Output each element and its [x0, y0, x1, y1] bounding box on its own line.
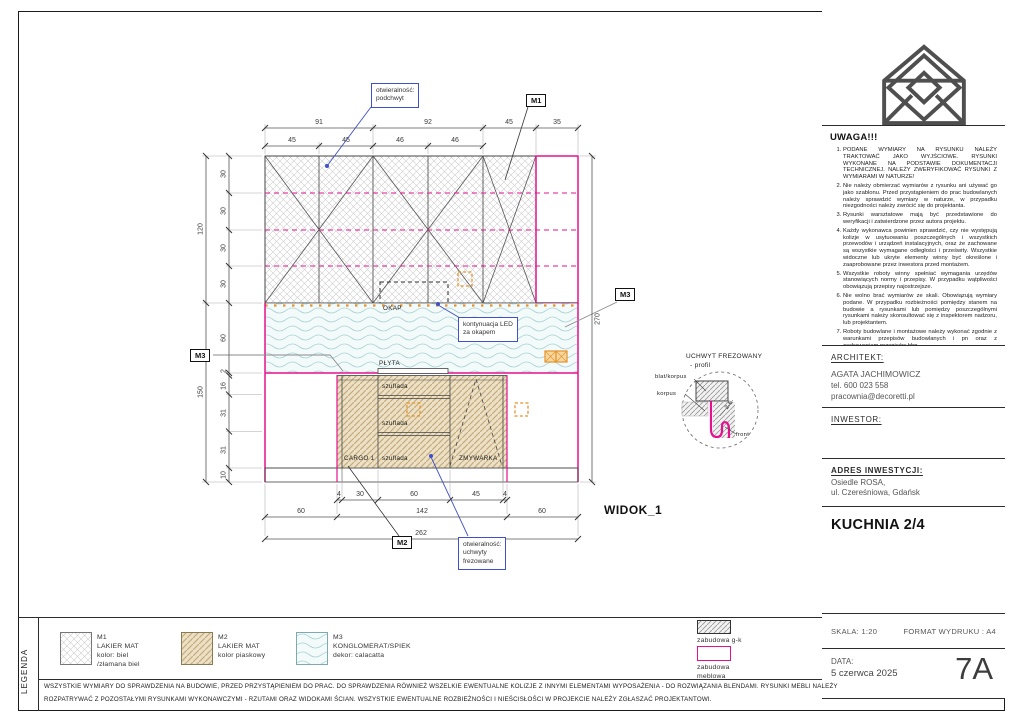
- detail-blat-label: blat/korpus: [655, 374, 687, 381]
- legend-line: LAKIER MAT: [97, 642, 140, 651]
- address-line1: Osiedle ROSA,: [831, 478, 996, 487]
- callout-line: otwieralność:: [376, 87, 414, 96]
- note-item: Nie należy obmierzać wymiarów z rysunku …: [843, 183, 997, 210]
- detail-title: UCHWYT FREZOWANY: [686, 353, 762, 360]
- dim-label: 16: [221, 382, 228, 390]
- dim-label: 45: [505, 119, 513, 127]
- marker-m3-right: M3: [615, 288, 635, 301]
- legend-line: kolor piaskowy: [218, 651, 265, 660]
- legend-zone-meblowa: zabudowa meblowa: [697, 663, 730, 681]
- callout-line: otwieralność:: [463, 541, 501, 550]
- legend-code: M1: [97, 633, 140, 642]
- legend-strip-label: LEGENDA: [20, 640, 37, 702]
- date-heading: DATA:: [831, 657, 853, 666]
- footer-note-line1: WSZYSTKIE WYMIARY DO SPRAWDZENIA NA BUDO…: [44, 683, 838, 690]
- marker-m3-left: M3: [190, 349, 210, 362]
- dim-label: 4: [337, 491, 341, 499]
- date-value: 5 czerwca 2025: [831, 668, 898, 679]
- callout-line: kontynuacja LED: [463, 321, 513, 330]
- scale-section: SKALA: 1:20 FORMAT WYDRUKU : A4: [822, 613, 1005, 648]
- legend-strip-divider-vertical: [38, 617, 39, 711]
- legend-code: M3: [333, 633, 411, 642]
- dim-label: 30: [356, 491, 364, 499]
- scale-label: SKALA: 1:20: [831, 627, 877, 636]
- dim-label: 30: [221, 207, 228, 215]
- callout-line: frezowane: [463, 558, 501, 567]
- legend-swatch-m3: [296, 632, 328, 665]
- dim-label: 60: [297, 508, 305, 516]
- dim-label: 30: [221, 170, 228, 178]
- investor-heading: INWESTOR:: [831, 415, 996, 424]
- dim-label: 262: [415, 530, 427, 538]
- dim-label: 35: [553, 119, 561, 127]
- szuflada-label: szuflada: [382, 383, 408, 390]
- marker-m1: M1: [526, 94, 546, 107]
- sheet-title: KUCHNIA 2/4: [831, 517, 996, 533]
- legend-zone-gk: zabudowa g-k: [697, 636, 742, 645]
- right-panel-bottom-border: [822, 698, 1005, 699]
- architect-name: AGATA JACHIMOWICZ: [831, 369, 996, 379]
- architect-phone: tel. 600 023 558: [831, 381, 996, 390]
- notes-section: UWAGA!!! PODANE WYMIARY NA RYSUNKU NALEŻ…: [822, 125, 1005, 345]
- szuflada-label: szuflada: [382, 455, 408, 462]
- dim-label: 91: [315, 119, 323, 127]
- date-section: DATA: 5 czerwca 2025 7A: [822, 648, 1005, 698]
- legend-line: kolor: biel: [97, 651, 140, 660]
- callout-line: uchwyty: [463, 549, 501, 558]
- zmywarka-label: ZMYWARKA: [459, 455, 498, 462]
- legend-line: KONGLOMERAT/SPIEK: [333, 642, 411, 651]
- detail-subtitle: - profil: [690, 362, 710, 369]
- note-item: Każdy wykonawca powinien sprawdzić, czy …: [843, 228, 997, 269]
- dim-label: 31: [221, 409, 228, 417]
- dim-label: 45: [288, 137, 296, 145]
- legend-line: dekor: calacatta: [333, 651, 411, 660]
- legend-swatch-gk: [697, 620, 731, 634]
- address-line2: ul. Czereśniowa, Gdańsk: [831, 488, 996, 497]
- callout-podchwyt: otwieralność: podchwyt: [371, 83, 419, 108]
- dim-label: 120: [198, 223, 205, 235]
- dim-label: 60: [538, 508, 546, 516]
- format-label: FORMAT WYDRUKU : A4: [903, 627, 996, 636]
- architect-heading: ARCHITEKT:: [831, 353, 996, 362]
- szuflada-label: szuflada: [382, 420, 408, 427]
- legend-item-m1: M1 LAKIER MAT kolor: biel /złamana biel: [97, 633, 140, 669]
- view-title: WIDOK_1: [604, 503, 662, 517]
- notes-list: PODANE WYMIARY NA RYSUNKU NALEŻY TRAKTOW…: [830, 147, 997, 345]
- detail-front-label: front: [736, 432, 749, 439]
- callout-line: podchwyt: [376, 95, 414, 104]
- architect-section: ARCHITEKT: AGATA JACHIMOWICZ tel. 600 02…: [822, 345, 1005, 407]
- dim-label: 30: [221, 280, 228, 288]
- legend-swatch-m1: [60, 632, 92, 665]
- legend-code: M2: [218, 633, 265, 642]
- address-section: ADRES INWESTYCJI: Osiedle ROSA, ul. Czer…: [822, 458, 1005, 506]
- callout-line: za okapem: [463, 329, 513, 338]
- note-item: PODANE WYMIARY NA RYSUNKU NALEŻY TRAKTOW…: [843, 147, 997, 181]
- address-heading: ADRES INWESTYCJI:: [831, 466, 996, 475]
- dim-label: 92: [424, 119, 432, 127]
- legend-line: zabudowa g-k: [697, 636, 742, 645]
- legend-strip-divider-top: [18, 617, 822, 618]
- dim-label: 45: [472, 491, 480, 499]
- okap-label: OKAP: [383, 305, 402, 312]
- legend-line: zabudowa: [697, 663, 730, 672]
- dim-label: 60: [221, 334, 228, 342]
- callout-uchwyty: otwieralność: uchwyty frezowane: [458, 537, 506, 570]
- callout-led: kontynuacja LED za okapem: [458, 317, 518, 342]
- dim-label: 2: [221, 369, 228, 373]
- dim-label: 10: [221, 471, 228, 479]
- marker-m2: M2: [392, 536, 412, 549]
- plyta-label: PŁYTA: [379, 360, 400, 367]
- dim-label: 45: [342, 137, 350, 145]
- architect-email: pracownia@decoretti.pl: [831, 392, 996, 401]
- dim-label: 30: [221, 244, 228, 252]
- legend-line: LAKIER MAT: [218, 642, 265, 651]
- legend-item-m2: M2 LAKIER MAT kolor piaskowy: [218, 633, 265, 660]
- dim-label: 46: [451, 137, 459, 145]
- notes-title: UWAGA!!!: [830, 132, 997, 143]
- cargo-label: CARGO 1: [344, 455, 374, 462]
- legend-swatch-m2: [181, 632, 213, 665]
- dim-label: 46: [396, 137, 404, 145]
- sheet-number: 7A: [955, 651, 993, 687]
- detail-korpus-label: korpus: [657, 391, 676, 398]
- dim-label: 270: [595, 313, 602, 325]
- note-item: Wszystkie roboty winny spełniać wymagani…: [843, 271, 997, 291]
- dim-label: 150: [198, 386, 205, 398]
- decoretti-house-logo: [872, 41, 976, 125]
- investor-section: INWESTOR:: [822, 407, 1005, 458]
- dim-label: 142: [416, 508, 428, 516]
- legend-line: meblowa: [697, 672, 730, 681]
- note-item: Nie wolno brać wymiarów ze skali. Obowią…: [843, 293, 997, 327]
- logo-section: [822, 11, 1005, 125]
- note-item: Rysunki warsztatowe mają być przedstawio…: [843, 212, 997, 226]
- dim-label: 4: [503, 491, 507, 499]
- footer-note-line2: ROZPATRYWAĆ Z POZOSTAŁYMI RYSUNKAMI WYKO…: [44, 696, 712, 703]
- dim-label: 60: [410, 491, 418, 499]
- title-section: KUCHNIA 2/4: [822, 506, 1005, 613]
- legend-item-m3: M3 KONGLOMERAT/SPIEK dekor: calacatta: [333, 633, 411, 660]
- legend-swatch-meblowa: [697, 646, 731, 661]
- note-item: Roboty budowlane i montażowe należy wyko…: [843, 329, 997, 345]
- dim-label: 31: [221, 446, 228, 454]
- legend-line: /złamana biel: [97, 660, 140, 669]
